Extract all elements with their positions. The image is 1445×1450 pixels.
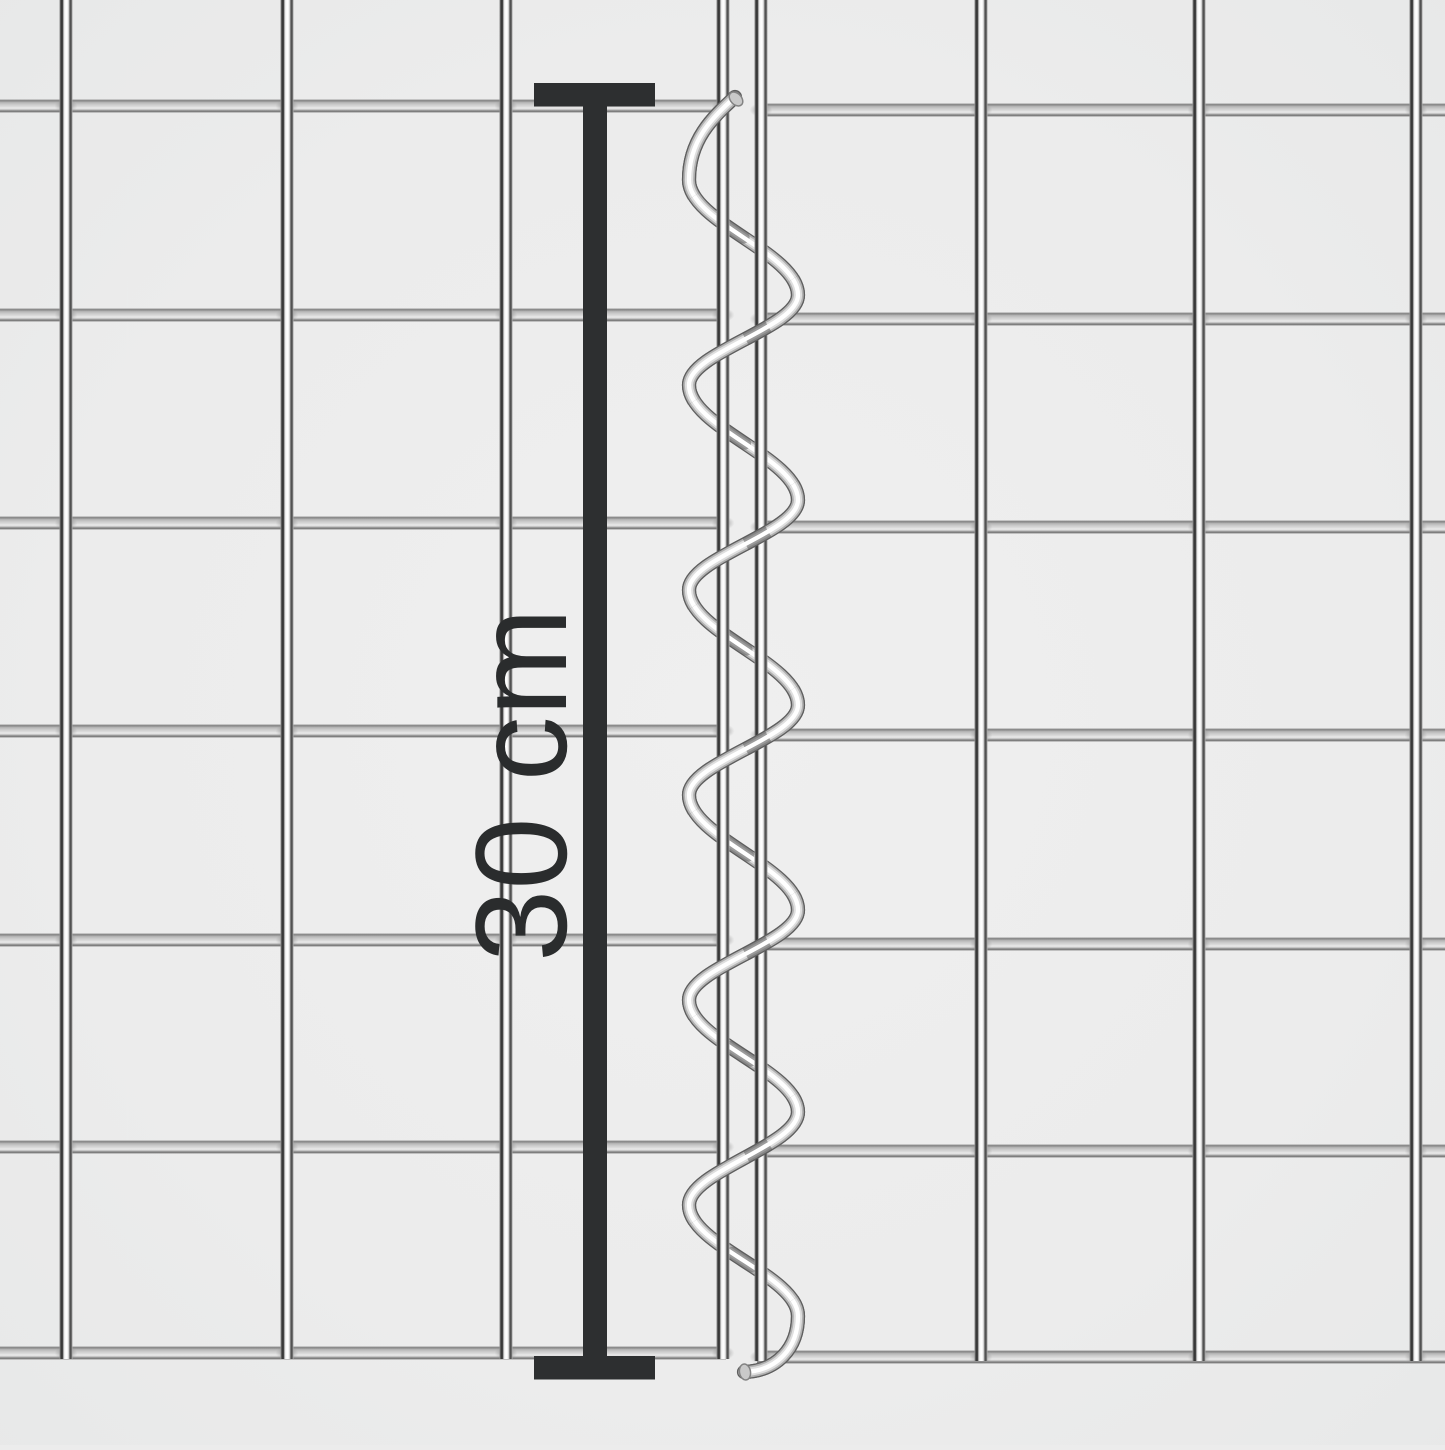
svg-text:30 cm: 30 cm (448, 608, 594, 962)
